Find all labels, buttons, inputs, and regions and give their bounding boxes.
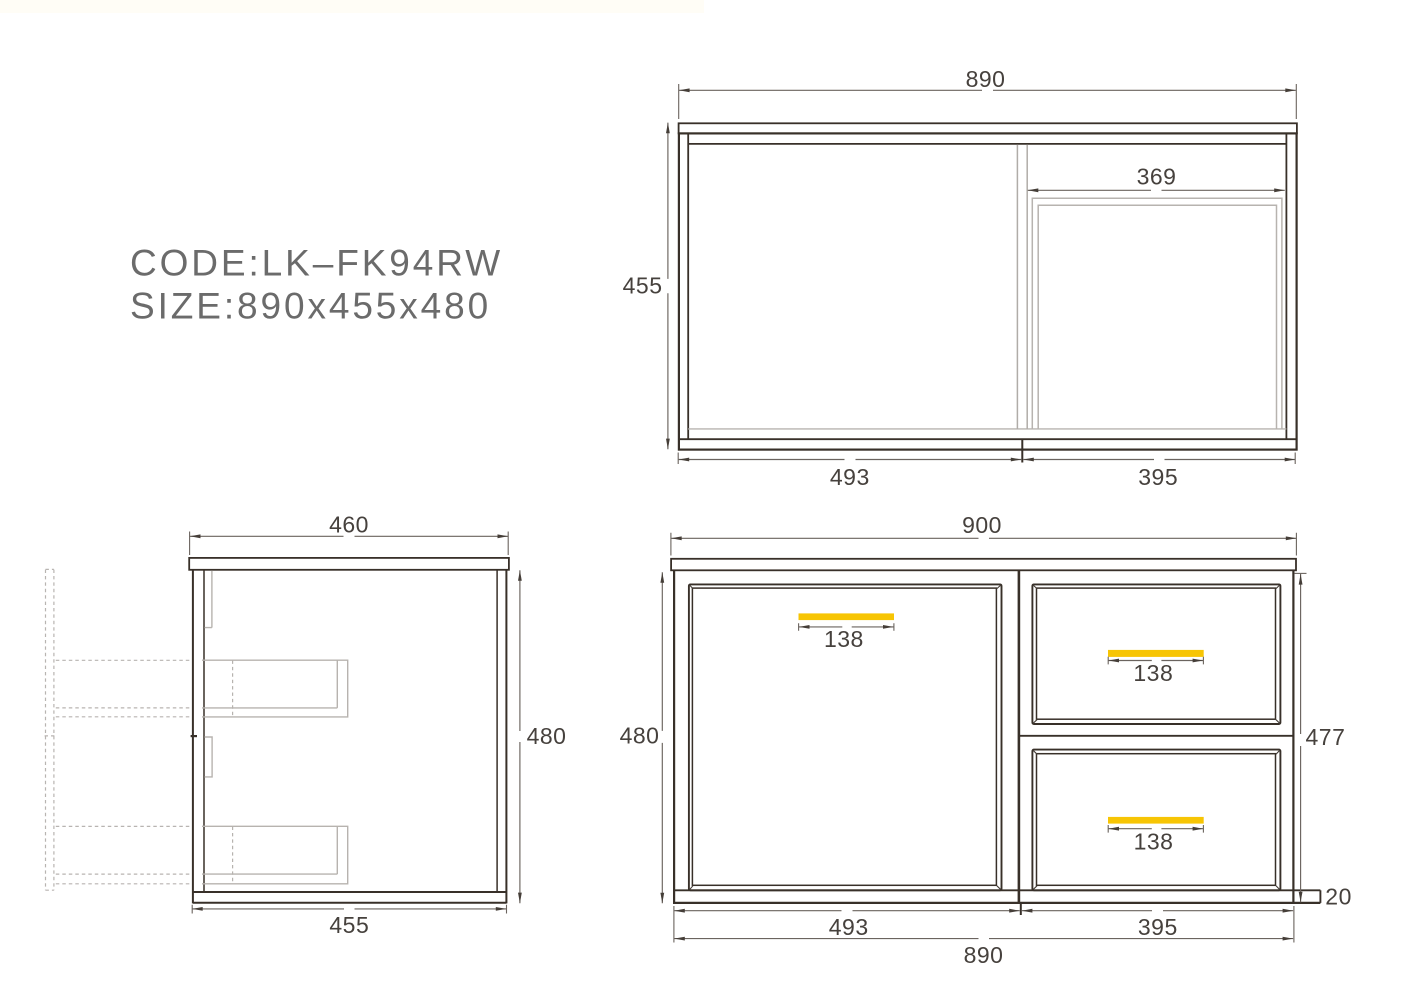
svg-text:477: 477 [1306, 724, 1346, 750]
svg-text:455: 455 [623, 273, 663, 299]
svg-text:455: 455 [329, 912, 369, 938]
svg-text:CODE:LK–FK94RW: CODE:LK–FK94RW [130, 243, 503, 284]
svg-text:480: 480 [620, 722, 660, 748]
svg-text:20: 20 [1325, 883, 1352, 909]
svg-text:890: 890 [966, 66, 1006, 92]
svg-text:395: 395 [1138, 464, 1178, 490]
svg-text:395: 395 [1138, 914, 1178, 940]
svg-text:900: 900 [962, 512, 1002, 538]
svg-text:460: 460 [329, 512, 369, 538]
svg-text:493: 493 [829, 914, 869, 940]
svg-text:369: 369 [1137, 164, 1177, 190]
svg-text:493: 493 [830, 464, 870, 490]
svg-text:138: 138 [1133, 660, 1173, 686]
svg-text:138: 138 [1134, 829, 1174, 855]
svg-text:SIZE:890x455x480: SIZE:890x455x480 [130, 285, 491, 326]
svg-text:138: 138 [824, 626, 864, 652]
svg-text:890: 890 [964, 942, 1004, 968]
svg-text:480: 480 [527, 723, 567, 749]
